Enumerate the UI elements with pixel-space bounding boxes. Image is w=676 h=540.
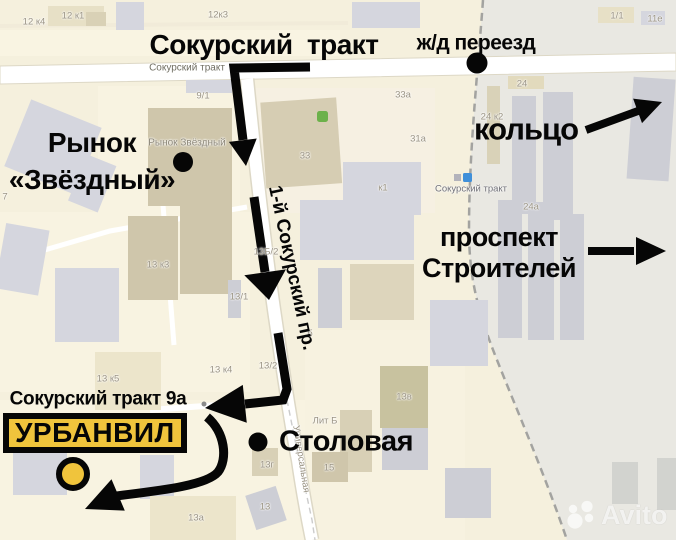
building-label: 13в — [396, 392, 412, 403]
annotation-prospekt-line2: Строителей — [422, 253, 576, 284]
building-label: 13г — [260, 460, 274, 471]
building-label: 13Б/2 — [254, 247, 279, 258]
building-label: к1 — [378, 183, 387, 194]
avito-watermark: Avito — [566, 498, 668, 532]
annotation-market-line2: «Звёздный» — [9, 162, 175, 199]
bus-stop-label: Сокурский тракт — [435, 184, 507, 195]
building-label: 13 к3 — [147, 260, 170, 271]
annotation-main-road: Сокурский тракт — [149, 30, 378, 60]
map: 12 к4 12 к1 12к3 1/1 11е 9/1 33а 31а 33 … — [0, 0, 676, 540]
destination-badge-label: УРБАНВИЛ — [15, 417, 175, 449]
pharmacy-icon — [202, 402, 207, 407]
annotation-market-line1: Рынок — [9, 125, 175, 162]
building-label: 33а — [395, 90, 411, 101]
market-dot — [173, 152, 193, 172]
building-label: 13 к4 — [210, 365, 233, 376]
shop-icon — [317, 111, 328, 122]
avito-logo-icon — [566, 498, 598, 532]
building-label: 12 к1 — [62, 11, 85, 22]
building-label: 13 к5 — [97, 374, 120, 385]
building-label: 13 — [260, 502, 271, 513]
road-label-sokursky-trakt: Сокурский тракт — [149, 63, 225, 74]
annotation-address: Сокурский тракт 9а — [10, 390, 187, 411]
annotation-canteen: Столовая — [279, 426, 413, 457]
building-label: 33 — [300, 151, 311, 162]
destination-marker — [56, 457, 90, 491]
building-label: 12к3 — [208, 10, 228, 21]
railway-crossing-dot — [467, 53, 488, 74]
avito-wordmark: Avito — [601, 500, 668, 531]
building-label: 1/1 — [610, 11, 623, 22]
annotation-ring: кольцо — [474, 112, 578, 145]
building-label: 31а — [410, 134, 426, 145]
building-label: 13/2 — [259, 361, 278, 372]
building-label: 13а — [188, 513, 204, 524]
annotation-prospekt: проспект Строителей — [422, 222, 576, 284]
building-label: 7 — [2, 192, 7, 203]
annotation-prospekt-line1: проспект — [422, 222, 576, 253]
building-label: 12 к4 — [23, 17, 46, 28]
building-label: 11е — [647, 14, 662, 25]
building-label: 24 — [517, 79, 528, 90]
building-label: 13/1 — [230, 292, 249, 303]
building-label: 15 — [324, 463, 335, 474]
canteen-dot — [249, 433, 268, 452]
annotation-market: Рынок «Звёздный» — [9, 125, 175, 199]
building-label: 24а — [523, 202, 539, 213]
destination-badge: УРБАНВИЛ — [3, 413, 187, 453]
building-label: 9/1 — [196, 91, 209, 102]
